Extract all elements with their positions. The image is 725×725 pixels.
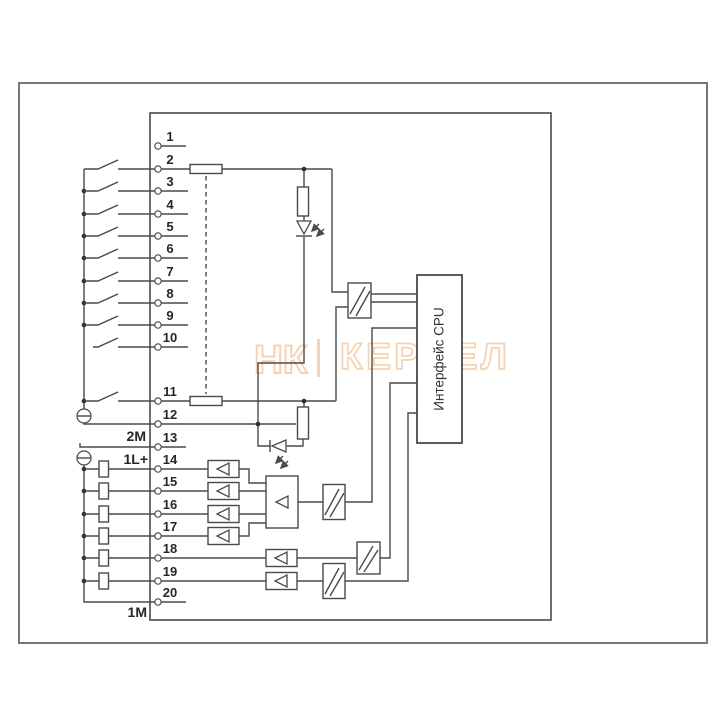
terminal-number: 19 xyxy=(163,564,177,579)
terminal-number: 17 xyxy=(163,519,177,534)
cpu-interface-label: Интерфейс CPU xyxy=(432,307,447,410)
terminal-14: 14 xyxy=(155,452,208,472)
switch-icon-input9 xyxy=(84,316,155,325)
driver-icon-14 xyxy=(208,461,239,478)
optocoupler-icon-outputs-group xyxy=(323,485,345,520)
driver-icon-17 xyxy=(208,528,239,545)
terminal-number: 6 xyxy=(166,241,173,256)
terminal-number: 9 xyxy=(166,308,173,323)
resistor-icon xyxy=(298,187,309,216)
terminal-16: 16 xyxy=(155,497,208,517)
terminal-9: 9 xyxy=(155,308,188,328)
terminal-20: 20 xyxy=(155,585,186,605)
output-loads xyxy=(84,461,155,589)
schematic-page: НК КЕРНЕЛ xyxy=(0,0,725,725)
driver-icon-18 xyxy=(266,550,297,567)
terminal-number: 20 xyxy=(163,585,177,600)
terminal-number: 10 xyxy=(163,330,177,345)
load-icon-17 xyxy=(99,528,109,544)
switch-icon-input4 xyxy=(84,205,155,214)
input-supply-bus xyxy=(77,169,155,447)
terminal-number: 14 xyxy=(163,452,178,467)
terminal-number: 11 xyxy=(163,384,177,399)
terminal-number: 7 xyxy=(166,264,173,279)
terminal-number: 8 xyxy=(166,286,173,301)
terminal-15: 15 xyxy=(155,474,208,494)
driver-icon-19 xyxy=(266,573,297,590)
switch-icon-input6 xyxy=(84,249,155,258)
load-icon-18 xyxy=(99,550,109,566)
terminal-2: 2 xyxy=(155,152,190,172)
cpu-interface-box: Интерфейс CPU xyxy=(417,275,462,443)
terminal-11: 11 xyxy=(155,384,190,404)
optocoupler-icon-input xyxy=(348,283,417,318)
terminal-12: 12 xyxy=(155,407,296,427)
terminal-number: 3 xyxy=(166,174,173,189)
driver-icon-15 xyxy=(208,483,239,500)
switch-icon-input7 xyxy=(84,272,155,281)
terminal-17: 17 xyxy=(155,519,208,539)
load-icon-16 xyxy=(99,506,109,522)
load-icon-19 xyxy=(99,573,109,589)
switch-icon-input10 xyxy=(93,338,155,347)
label-1m: 1M xyxy=(128,604,147,620)
switch-icon-input5 xyxy=(84,227,155,236)
optocoupler-icon-output18 xyxy=(357,542,380,574)
optocoupler-icon-output19 xyxy=(323,564,345,599)
terminal-6: 6 xyxy=(155,241,188,261)
switch-icon-input3 xyxy=(84,182,155,191)
load-icon-15 xyxy=(99,483,109,499)
terminal-1: 1 xyxy=(155,129,186,149)
resistor-icon xyxy=(190,397,222,406)
terminal-7: 7 xyxy=(155,264,188,284)
terminal-number: 13 xyxy=(163,430,177,445)
terminal-number: 1 xyxy=(166,129,173,144)
terminal-number: 2 xyxy=(166,152,173,167)
terminal-5: 5 xyxy=(155,219,188,239)
watermark-monogram: НК xyxy=(254,338,308,382)
watermark: НК КЕРНЕЛ xyxy=(254,336,510,382)
wiring-diagram: НК КЕРНЕЛ xyxy=(0,0,725,725)
input-switches xyxy=(84,160,155,401)
label-2m: 2M xyxy=(127,428,146,444)
terminal-number: 5 xyxy=(166,219,173,234)
terminal-8: 8 xyxy=(155,286,188,306)
terminal-number: 15 xyxy=(163,474,177,489)
terminal-4: 4 xyxy=(155,197,188,217)
label-1l-plus: 1L+ xyxy=(123,451,148,467)
terminal-13: 13 xyxy=(155,430,186,450)
terminal-number: 4 xyxy=(166,197,174,212)
output-supply-bus xyxy=(77,451,155,602)
led-icon-input11 xyxy=(270,440,288,469)
driver-group-icon xyxy=(266,476,298,528)
terminal-19: 19 xyxy=(155,564,266,584)
terminal-10: 10 xyxy=(155,330,188,350)
resistor-icon xyxy=(190,165,222,174)
driver-icon-16 xyxy=(208,506,239,523)
resistor-icon xyxy=(298,407,309,439)
input-channel-11 xyxy=(190,307,348,469)
led-icon-input xyxy=(296,221,324,237)
switch-icon-input11 xyxy=(84,392,155,401)
wire-terminal12-external xyxy=(84,423,155,424)
power-labels: 2M 1L+ 1M xyxy=(123,428,148,620)
terminal-number: 16 xyxy=(163,497,177,512)
load-icon-14 xyxy=(99,461,109,477)
terminal-number: 18 xyxy=(163,541,177,556)
switch-icon-input2 xyxy=(84,160,155,169)
watermark-divider xyxy=(317,339,320,377)
switch-icon-input8 xyxy=(84,294,155,303)
terminal-number: 12 xyxy=(163,407,177,422)
terminal-3: 3 xyxy=(155,174,188,194)
